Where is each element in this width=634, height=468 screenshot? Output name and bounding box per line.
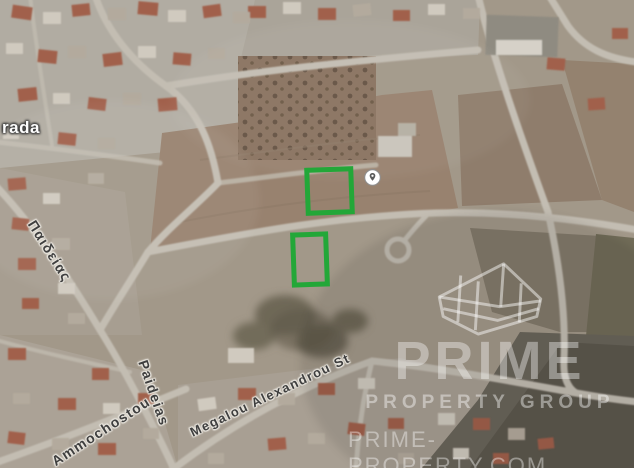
location-pin-icon[interactable] xyxy=(364,169,381,186)
locality-label: rada xyxy=(2,118,40,138)
plot-outline-upper xyxy=(304,166,355,216)
plot-outline-lower xyxy=(290,231,330,287)
satellite-map-view[interactable]: rada Παιδείας Paideias Ammochostou Megal… xyxy=(0,0,634,468)
